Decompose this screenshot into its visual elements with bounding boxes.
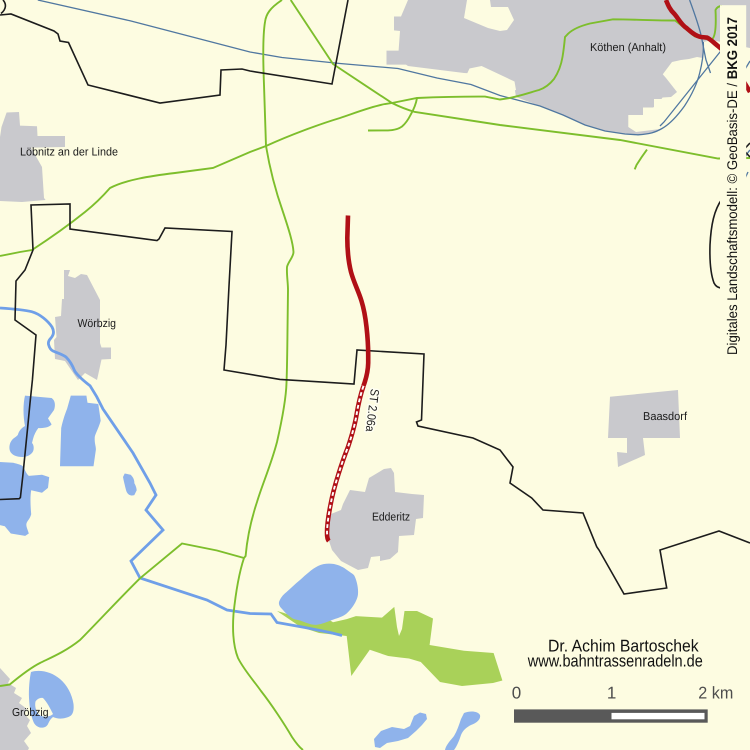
svg-text:Löbnitz an der Linde: Löbnitz an der Linde <box>20 147 118 159</box>
svg-text:Edderitz: Edderitz <box>372 512 410 524</box>
svg-text:2 km: 2 km <box>698 684 733 703</box>
svg-text:0: 0 <box>512 684 521 703</box>
svg-text:Wörbzig: Wörbzig <box>78 318 117 330</box>
svg-text:Köthen (Anhalt): Köthen (Anhalt) <box>590 42 666 54</box>
svg-text:1: 1 <box>607 684 616 703</box>
svg-text:Digitales Landschaftsmodell: ©: Digitales Landschaftsmodell: © GeoBasis-… <box>724 17 740 355</box>
svg-text:Gröbzig: Gröbzig <box>12 707 49 719</box>
svg-text:Baasdorf: Baasdorf <box>643 411 688 423</box>
svg-text:www.bahntrassenradeln.de: www.bahntrassenradeln.de <box>527 651 703 670</box>
